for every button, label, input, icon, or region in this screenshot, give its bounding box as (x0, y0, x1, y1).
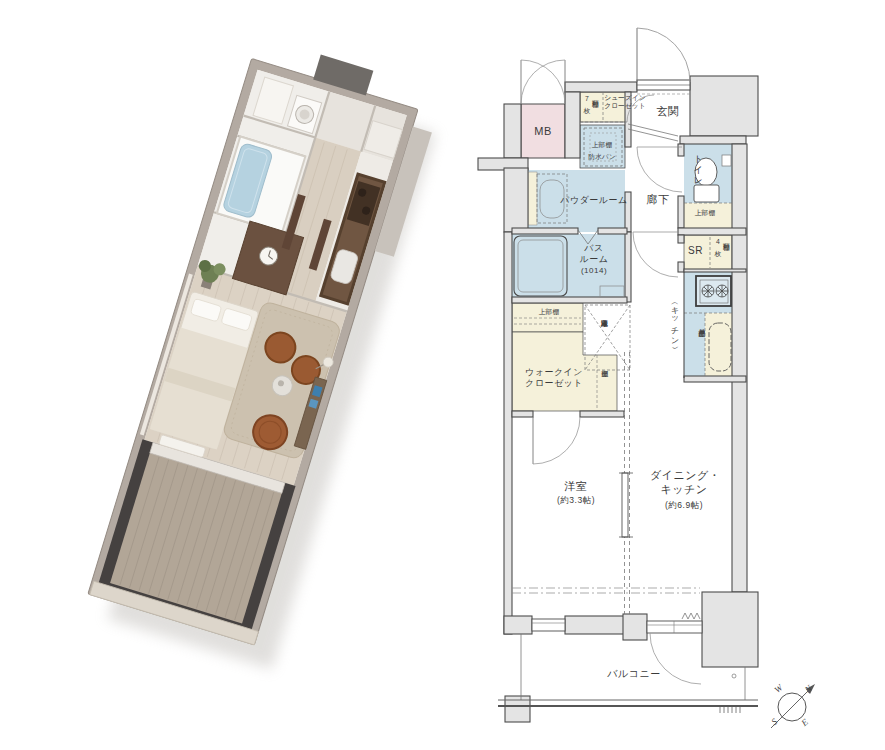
label-entrance: 玄関 (648, 105, 688, 119)
label-sr-shelf: 可動棚 4枚 (713, 238, 730, 268)
label-dk-line1: ダイニング・ (650, 469, 718, 483)
label-sic-shelf-line1: 可動棚 (590, 95, 598, 121)
label-refrigerator: 冷蔵庫置場 (599, 314, 608, 362)
render-3d (83, 36, 448, 670)
label-toilet-shelf: 上部棚 (684, 209, 726, 217)
label-hallway: 廊下 (638, 193, 678, 207)
toilet-control-box (722, 155, 731, 166)
compass-w: W (772, 682, 785, 695)
label-dining-kitchen: ダイニング・ キッチン (650, 469, 718, 497)
label-shoes-closet: シューズイン クローゼット (602, 94, 648, 111)
bedroom-window (532, 619, 565, 631)
label-shoes-closet-line1: シューズイン (602, 94, 648, 102)
label-sr-shelf-line2: 4枚 (713, 238, 721, 268)
label-sr: SR (688, 245, 703, 258)
label-wic-side-shelf: 上部棚 (600, 364, 608, 394)
vanity-backsplash (528, 172, 537, 225)
floorplan-page: { "colors": { "closet_cream": "#f5f1da",… (0, 0, 885, 750)
label-western-room-size: (約3.3帖) (540, 495, 612, 506)
label-dk-size: (約6.9帖) (650, 500, 718, 511)
compass-s: S (769, 716, 779, 727)
compass-e: E (798, 717, 810, 729)
wic-door-arc (533, 417, 580, 464)
label-laundry-shelf: 上部棚 (580, 141, 624, 149)
rail-hatch (720, 707, 740, 713)
label-sic-shelf: 可動棚 7枚 (582, 95, 599, 121)
label-bathroom: バス ルーム (1014) (570, 243, 618, 276)
label-mb: MB (521, 125, 565, 139)
partition-panel (622, 473, 628, 537)
label-powder-room: パウダールーム (560, 195, 628, 206)
label-kitchen: （キッチン） (669, 300, 679, 364)
label-wic-line2: クローゼット (518, 378, 590, 389)
label-wic-line1: ウォークイン (518, 367, 590, 378)
label-bathroom-line2: ルーム (570, 254, 618, 265)
dk-door-arc (633, 232, 678, 277)
balcony-slider (647, 621, 702, 633)
drain-circle (732, 674, 736, 678)
label-wic: ウォークイン クローゼット (518, 367, 590, 390)
mb-door-arc-right (521, 60, 565, 104)
entry-step-line-1 (628, 124, 678, 136)
scene-svg: N W S E (0, 0, 885, 750)
label-bathroom-line1: バス (570, 243, 618, 254)
label-dk-line2: キッチン (650, 483, 718, 497)
label-laundry-pan: 防水パン (580, 153, 624, 161)
entry-step-line-2 (628, 129, 678, 141)
label-shoes-closet-line2: クローゼット (602, 102, 648, 110)
screen-door-spring (682, 613, 700, 619)
label-wic-upper-shelf: 上部棚 (526, 308, 572, 316)
label-balcony: バルコニー (603, 668, 665, 681)
label-western-room: 洋室 (545, 480, 607, 494)
label-toilet: トイレ (692, 149, 703, 193)
mb-door-arc-left (521, 60, 565, 104)
compass-n: N (802, 683, 815, 696)
label-hanging-cupboard: 上部吊戸棚 (697, 324, 705, 374)
toilet-door-arc (637, 147, 682, 192)
compass-rose: N W S E (769, 682, 815, 729)
label-bathroom-size: (1014) (570, 266, 618, 276)
label-sic-shelf-line2: 7枚 (582, 95, 590, 121)
label-sr-shelf-line1: 可動棚 (721, 238, 729, 268)
entrance-door-arc (637, 28, 690, 82)
